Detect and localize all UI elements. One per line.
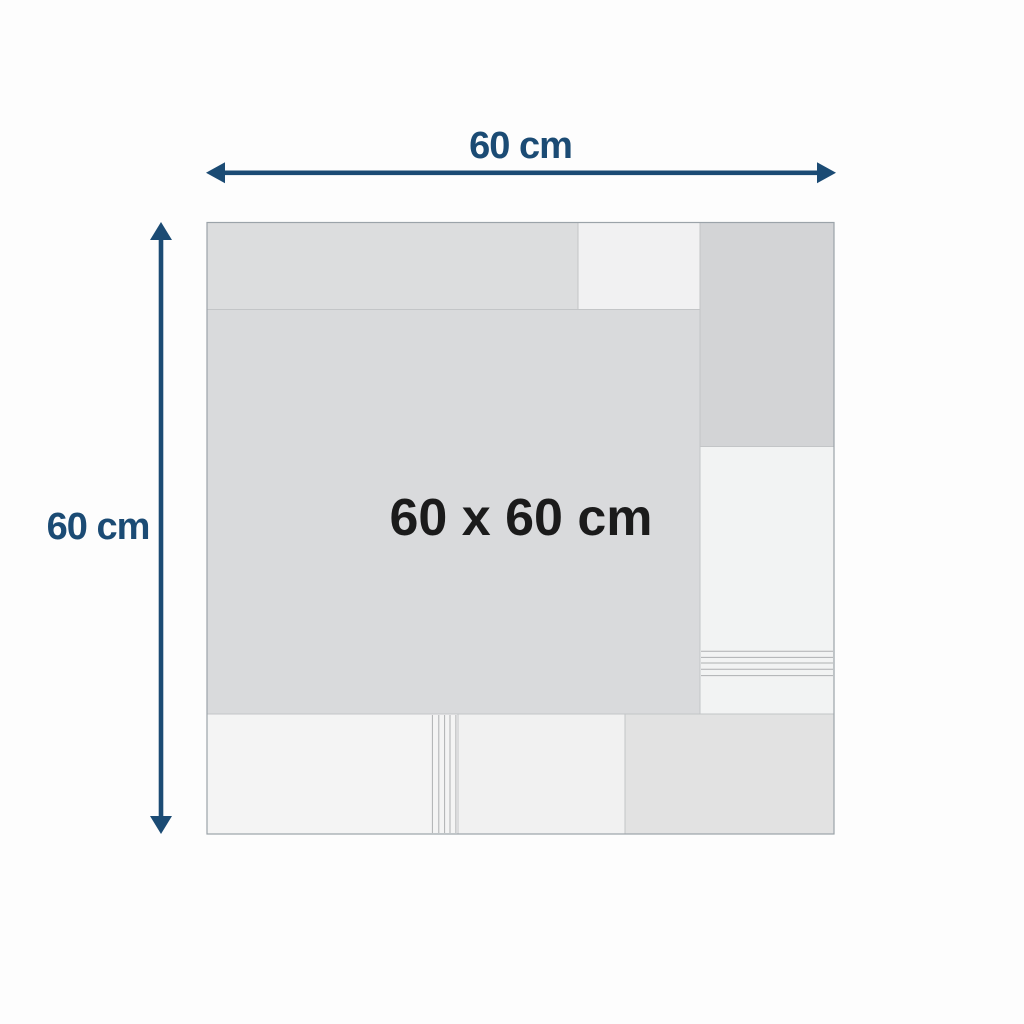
svg-text:60 cm: 60 cm [469, 125, 572, 167]
svg-text:60 cm: 60 cm [47, 506, 150, 548]
svg-text:60 x 60 cm: 60 x 60 cm [389, 489, 652, 547]
